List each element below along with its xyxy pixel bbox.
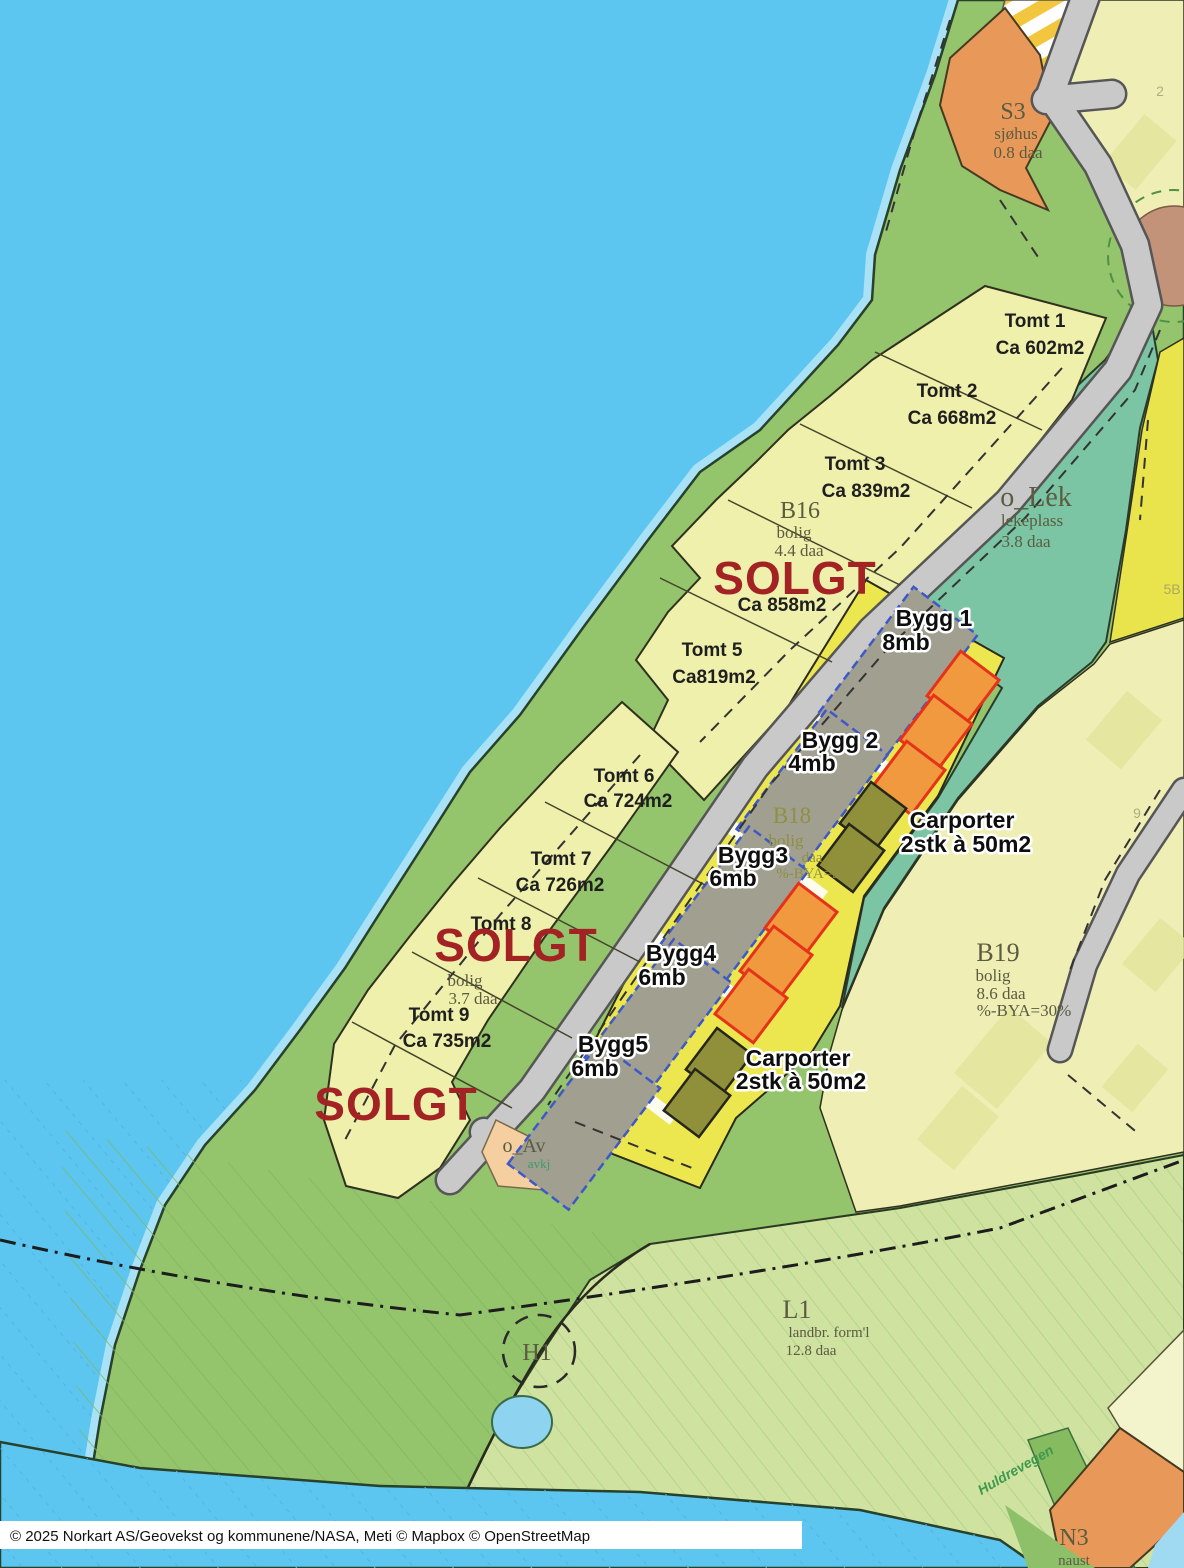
area-size-s3: 0.8 daa [993, 143, 1043, 162]
plot-label-tomt1: Tomt 1 [1005, 311, 1066, 332]
building-label-bygg1: Bygg 1 [896, 605, 973, 631]
plot-size-tomt5: Ca819m2 [672, 667, 755, 688]
area-label-b16: B16 [780, 498, 820, 524]
area-label-n3: N3 [1059, 1525, 1088, 1551]
zoning-map: S3 sjøhus 0.8 daa Tomt 1 Ca 602m2 Tomt 2… [0, 0, 1184, 1568]
sold-stamp-1: SOLGT [713, 552, 876, 604]
area-label-lek: o_Lek [1000, 482, 1072, 513]
carport-detail-upper: 2stk à 50m2 [901, 831, 1031, 857]
map-viewport: S3 sjøhus 0.8 daa Tomt 1 Ca 602m2 Tomt 2… [0, 0, 1184, 1568]
area-label-b18: B18 [773, 803, 811, 828]
carport-title-upper: Carporter [910, 807, 1015, 833]
area-type-lek: lekeplass [1001, 511, 1063, 530]
area-type-s3: sjøhus [994, 124, 1037, 143]
plot-label-tomt9: Tomt 9 [409, 1005, 470, 1026]
area-type-l1: landbr. form'l [788, 1325, 869, 1341]
building-height-bygg3: 6mb [709, 865, 756, 891]
area-size-b18: daa [802, 850, 823, 866]
area-bya-b18: %-BYA=30% [776, 866, 859, 882]
plot-size-tomt9: Ca 735m2 [403, 1031, 492, 1052]
building-label-bygg4: Bygg4 [646, 940, 717, 966]
area-bya-b19: %-BYA=30% [977, 1001, 1072, 1020]
plot-label-tomt2: Tomt 2 [917, 381, 978, 402]
area-label-h1: H1 [522, 1340, 551, 1366]
area-label-b19: B19 [976, 938, 1019, 967]
carport-detail-lower: 2stk à 50m2 [736, 1068, 866, 1094]
building-height-bygg5: 6mb [571, 1055, 618, 1081]
area-type-n3: naust [1058, 1553, 1090, 1568]
area-type-b17: bolig [448, 971, 483, 990]
building-height-bygg1: 8mb [882, 629, 929, 655]
plot-size-tomt1: Ca 602m2 [996, 338, 1085, 359]
plot-size-tomt6: Ca 724m2 [584, 791, 673, 812]
plot-label-tomt5: Tomt 5 [682, 640, 743, 661]
building-height-bygg4: 6mb [638, 964, 685, 990]
area-type-b19: bolig [976, 966, 1011, 985]
plot-size-tomt2: Ca 668m2 [908, 408, 997, 429]
plot-label-tomt3: Tomt 3 [825, 454, 886, 475]
area-size-lek: 3.8 daa [1001, 532, 1051, 551]
plot-label-tomt7: Tomt 7 [531, 849, 592, 870]
attribution-text: © 2025 Norkart AS/Geovekst og kommunene/… [10, 1528, 590, 1545]
area-label-l1: L1 [783, 1295, 812, 1324]
area-label-av: o_Av [503, 1135, 546, 1157]
plot-size-tomt3: Ca 839m2 [822, 481, 911, 502]
plot-label-tomt6: Tomt 6 [594, 766, 655, 787]
bg-number-9: 9 [1133, 805, 1141, 821]
bg-number-2: 2 [1156, 83, 1164, 99]
area-type-b16: bolig [777, 523, 812, 542]
area-label-s3: S3 [1000, 99, 1025, 125]
sold-stamp-3: SOLGT [314, 1078, 477, 1130]
attribution-bar: © 2025 Norkart AS/Geovekst og kommunene/… [0, 1521, 802, 1549]
sold-stamp-2: SOLGT [434, 919, 597, 971]
area-size-l1: 12.8 daa [786, 1343, 837, 1359]
pond [492, 1396, 552, 1448]
bg-number-5b: 5B [1163, 581, 1180, 597]
area-sub-av: avkj [528, 1156, 550, 1171]
building-height-bygg2: 4mb [788, 750, 835, 776]
plot-size-tomt7: Ca 726m2 [516, 875, 605, 896]
building-label-bygg5: Bygg5 [578, 1031, 649, 1057]
